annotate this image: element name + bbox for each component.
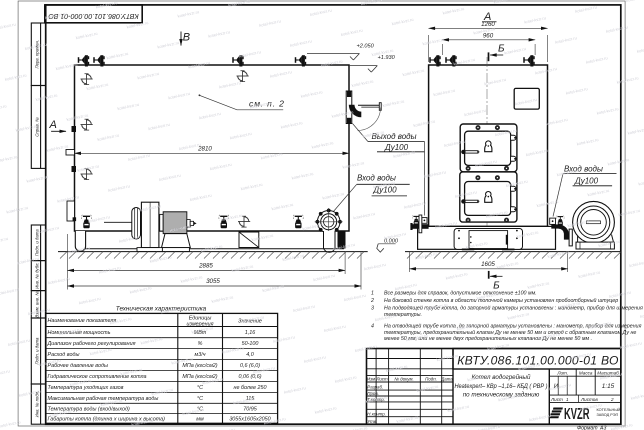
svg-text:2885: 2885: [198, 263, 213, 270]
svg-text:Наименование показателя: Наименование показателя: [48, 318, 117, 324]
svg-text:Ду100: Ду100: [574, 177, 599, 186]
svg-text:А: А: [49, 119, 57, 131]
svg-text:На боковой стенке котла в обла: На боковой стенке котла в области топочн…: [384, 297, 618, 304]
svg-text:Рабочее давление воды: Рабочее давление воды: [48, 363, 108, 369]
svg-text:0,06 (0,6): 0,06 (0,6): [238, 374, 261, 380]
svg-text:Диапазон рабочего регулировани: Диапазон рабочего регулирования: [47, 341, 136, 347]
svg-text:Дата: Дата: [440, 376, 453, 381]
svg-text:Н.контр.: Н.контр.: [367, 412, 386, 417]
svg-text:3: 3: [371, 306, 374, 312]
svg-text:Разраб.: Разраб.: [367, 384, 383, 389]
svg-text:2: 2: [610, 397, 614, 402]
svg-text:Все размеры для справок, допус: Все размеры для справок, допустимое откл…: [384, 291, 537, 297]
svg-text:°С: °С: [197, 385, 203, 391]
svg-text:4: 4: [371, 324, 374, 330]
svg-text:В: В: [183, 32, 190, 44]
svg-text:Подп.: Подп.: [425, 376, 437, 381]
svg-text:70/95: 70/95: [243, 407, 257, 413]
svg-text:4,0: 4,0: [246, 352, 254, 358]
svg-text:№ докум.: № докум.: [394, 376, 413, 381]
svg-text:1,16: 1,16: [245, 330, 256, 336]
svg-text:не более 250: не более 250: [234, 385, 267, 391]
svg-text:Гидравлическое сопротивление к: Гидравлическое сопротивление котла: [48, 374, 147, 380]
svg-text:Масса: Масса: [579, 370, 593, 375]
svg-text:Температура уходящих газов: Температура уходящих газов: [48, 385, 124, 391]
svg-text:Листов: Листов: [580, 397, 598, 402]
svg-text:2: 2: [370, 298, 374, 304]
svg-text:50-100: 50-100: [242, 341, 259, 347]
svg-text:МПа (кгс/см2): МПа (кгс/см2): [182, 363, 217, 369]
svg-text:Утв.: Утв.: [367, 419, 377, 424]
svg-text:Лит.: Лит.: [556, 370, 568, 375]
svg-text:°С: °С: [197, 396, 203, 402]
svg-text:1: 1: [371, 291, 374, 297]
svg-text:960: 960: [483, 33, 494, 40]
svg-text:+1.930: +1.930: [378, 55, 396, 61]
svg-text:+2.050: +2.050: [357, 43, 375, 49]
svg-text:Формат: Формат: [577, 425, 598, 430]
svg-text:Расход воды: Расход воды: [48, 352, 80, 358]
svg-text:ЗАВОД РЭП: ЗАВОД РЭП: [597, 413, 619, 417]
svg-text:3055: 3055: [206, 278, 220, 285]
svg-text:А3: А3: [599, 425, 606, 430]
svg-text:Пров.: Пров.: [367, 391, 379, 396]
svg-text:Heatexpert– КВр –1,16– КБД ( Р: Heatexpert– КВр –1,16– КБД ( РВР ): [455, 383, 548, 390]
svg-text:мм: мм: [196, 417, 204, 423]
svg-text:%: %: [198, 341, 203, 347]
svg-text:м3/ч: м3/ч: [195, 352, 206, 358]
svg-text:Подп. и дата: Подп. и дата: [34, 337, 39, 365]
svg-text:Инв. № дубл.: Инв. № дубл.: [34, 262, 39, 288]
svg-text:КОТЕЛЬНЫЙ: КОТЕЛЬНЫЙ: [597, 408, 621, 412]
svg-text:1: 1: [566, 397, 569, 402]
svg-text:Инв. № подл.: Инв. № подл.: [34, 391, 39, 418]
svg-text:Лист: Лист: [550, 397, 563, 402]
svg-text:Изм Лист: Изм Лист: [367, 376, 388, 381]
svg-text:На подводящей трубе котла, д: На подводящей трубе котла, до запорной а…: [384, 305, 643, 312]
svg-text:1605: 1605: [481, 261, 495, 268]
svg-text:1:15: 1:15: [602, 383, 615, 390]
